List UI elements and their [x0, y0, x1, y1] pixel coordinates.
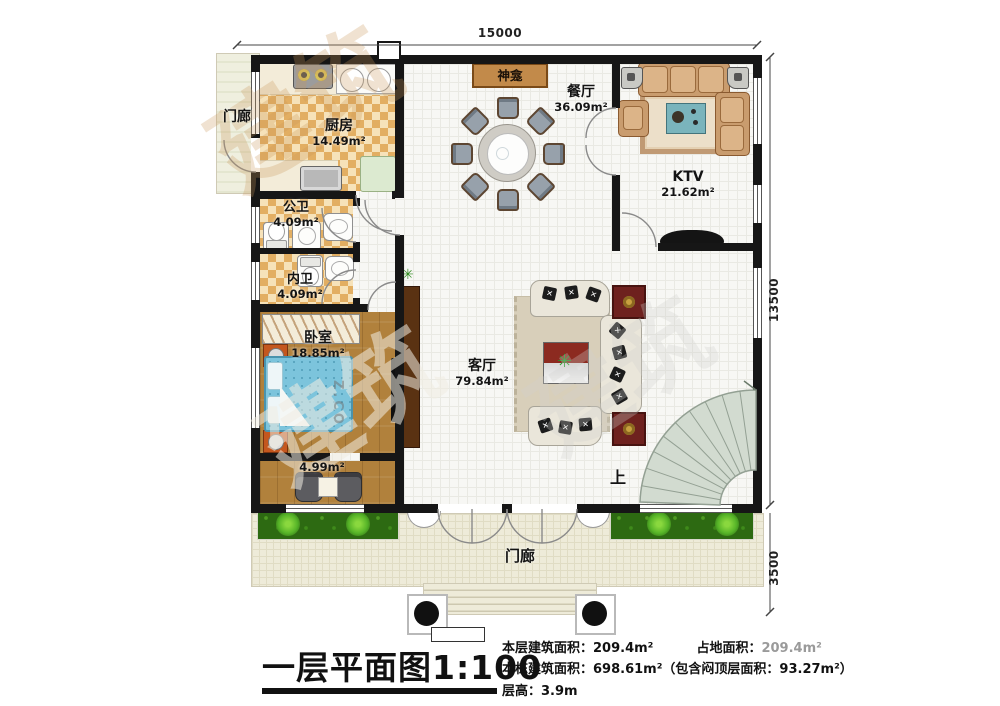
label-porch-bottom: 门廊: [470, 547, 570, 565]
balcony-chair-icon: [334, 472, 362, 502]
sofa-top: ✕ ✕ ✕: [530, 280, 610, 317]
wall: [251, 304, 368, 312]
label-public-bath: 公卫 4.09m²: [252, 200, 340, 229]
plant-icon: [647, 512, 671, 536]
building-area-line: 本栋建筑面积：698.61m²（包含闷顶层面积：93.27m²）: [502, 659, 853, 680]
sofa-right: ✕ ✕ ✕ ✕: [600, 315, 642, 414]
plant-icon: ✳: [402, 268, 416, 283]
pillow-icon: ✕: [612, 345, 628, 361]
side-table-icon: [612, 412, 646, 446]
wall: [364, 504, 438, 513]
dimension-porch: 3500: [767, 538, 783, 598]
window: [753, 185, 762, 223]
kitchen-prep-sink-icon: [300, 166, 342, 191]
label-dining: 餐厅 36.09m²: [531, 84, 631, 115]
plant-icon: [715, 512, 739, 536]
label-stair-up: 上: [604, 468, 632, 487]
pillow-icon: ✕: [558, 420, 573, 435]
area-info: 本层建筑面积：209.4m² 占地面积：209.4m² 本栋建筑面积：698.6…: [502, 638, 853, 702]
chair-icon: [497, 189, 519, 211]
wall: [392, 191, 395, 199]
label-inner-bath: 内卫 4.09m²: [256, 272, 344, 301]
pillow-icon: ✕: [611, 388, 629, 406]
label-balcony-area: 4.99m²: [272, 461, 372, 475]
wall: [395, 62, 404, 198]
pillow-icon: ✕: [608, 321, 626, 339]
hedge: [610, 509, 754, 540]
kitchen-double-sink-icon: [336, 64, 396, 94]
wall: [251, 248, 360, 254]
window: [251, 348, 260, 428]
scale-box: [431, 627, 485, 642]
label-ktv: KTV 21.62m²: [638, 169, 738, 200]
chimney: [377, 41, 401, 61]
plant-icon: ✳: [557, 353, 572, 371]
label-living: 客厅 79.84m²: [432, 358, 532, 389]
coffee-table: ✳: [543, 342, 589, 384]
fridge-icon: [360, 156, 396, 192]
pillow-icon: ✕: [564, 285, 579, 300]
wall: [732, 504, 762, 513]
porch-stoop: [423, 583, 597, 615]
pillow-icon: ✕: [609, 366, 626, 383]
floor-height-line: 层高：3.9m: [502, 681, 853, 702]
window: [640, 504, 732, 513]
label-porch-left: 门廊: [215, 109, 259, 126]
pillow-icon: ✕: [578, 417, 592, 431]
hedge: [257, 509, 399, 540]
wall: [502, 504, 512, 513]
plant-icon: [346, 512, 370, 536]
plant-icon: [276, 512, 300, 536]
porch-left-name: 门廊: [215, 109, 259, 126]
chair-icon: [451, 143, 473, 165]
door-opening: [251, 138, 260, 172]
wall: [612, 175, 620, 251]
column: [575, 594, 616, 635]
balcony-table-icon: [318, 477, 338, 497]
ktv-coffee-table: [666, 103, 706, 134]
ktv-sofa-right: [715, 92, 750, 156]
wall: [658, 243, 755, 251]
wall: [251, 55, 762, 64]
wall: [353, 242, 360, 262]
side-table-icon: [612, 285, 646, 319]
wall: [612, 243, 620, 251]
dining-table: [478, 124, 536, 182]
wall: [360, 453, 395, 461]
label-bedroom: 卧室 18.85m²: [268, 330, 368, 361]
window: [753, 78, 762, 144]
chair-icon: [497, 97, 519, 119]
bed: [264, 356, 353, 432]
window: [753, 268, 762, 338]
dimension-right: 13500: [767, 270, 783, 330]
stove-icon: [293, 64, 333, 89]
speaker-icon: [727, 67, 749, 89]
label-kitchen: 厨房 14.49m²: [289, 118, 389, 149]
wall: [395, 235, 404, 505]
wall: [577, 504, 640, 513]
sofa-bottom: ✕ ✕ ✕: [528, 406, 602, 446]
wall: [251, 504, 286, 513]
pillow-icon: ✕: [585, 286, 602, 303]
wall: [251, 191, 356, 199]
pillow-icon: ✕: [542, 286, 557, 301]
nightstand-icon: [263, 430, 288, 453]
plan-title: 一层平面图1:100: [262, 641, 542, 689]
pillow-icon: ✕: [537, 417, 553, 433]
floor-area-line: 本层建筑面积：209.4m² 占地面积：209.4m²: [502, 638, 853, 659]
ktv-sofa-back: [638, 62, 730, 97]
wall: [353, 198, 360, 206]
shrine-label: 神龛: [497, 68, 522, 83]
dimension-top: 15000: [467, 26, 533, 40]
window: [286, 504, 364, 513]
bed-sheet: [280, 386, 310, 426]
chair-icon: [543, 143, 565, 165]
title-underline: [262, 688, 497, 694]
floor-plan-page: ✳ 神龛: [0, 0, 1000, 706]
